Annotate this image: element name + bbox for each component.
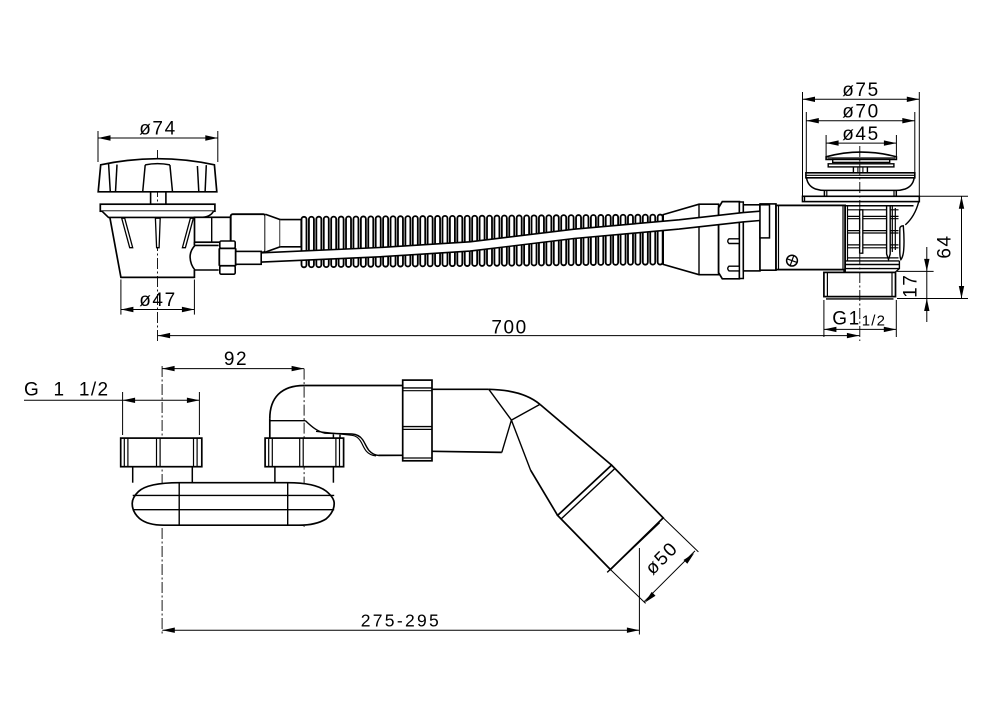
svg-text:ø70: ø70 [842, 102, 880, 123]
svg-text:G1: G1 [832, 309, 861, 330]
svg-text:G 1 1/2: G 1 1/2 [24, 380, 109, 401]
svg-text:275-295: 275-295 [361, 610, 441, 630]
svg-text:ø45: ø45 [842, 124, 880, 145]
svg-text:ø75: ø75 [842, 80, 880, 101]
svg-text:700: 700 [491, 317, 528, 338]
svg-text:1/2: 1/2 [862, 313, 886, 330]
svg-text:17: 17 [901, 274, 922, 298]
svg-text:64: 64 [935, 234, 956, 258]
svg-text:92: 92 [224, 349, 248, 370]
svg-text:ø74: ø74 [139, 119, 177, 140]
svg-text:ø47: ø47 [139, 290, 177, 311]
